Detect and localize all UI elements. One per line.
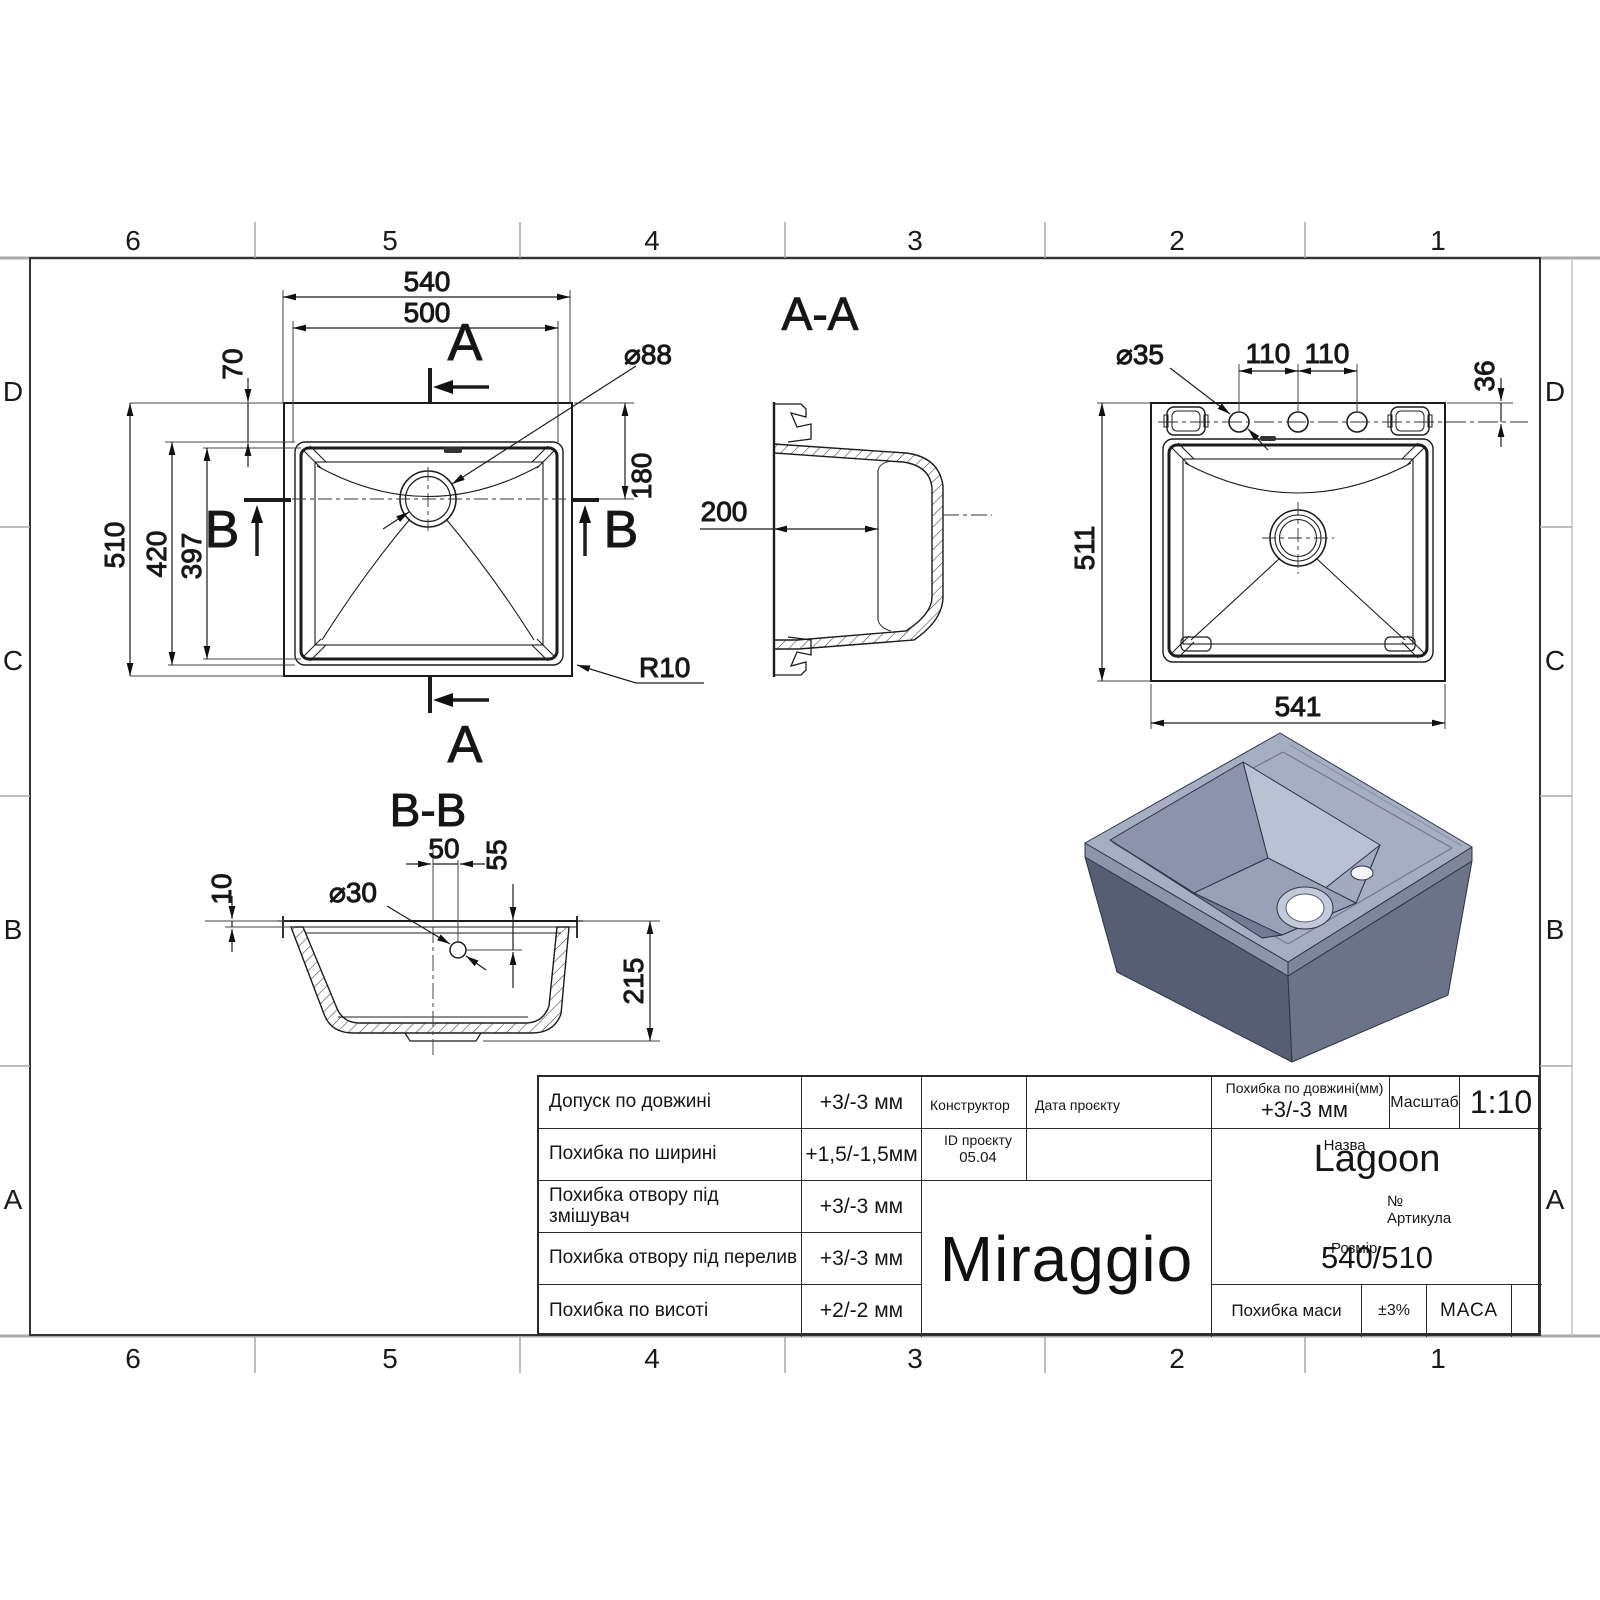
tolerance-label-5: Похибка по висоті xyxy=(539,1285,802,1337)
mounting-slot-left xyxy=(1164,407,1208,435)
aa-wall-section xyxy=(774,444,943,649)
title-block: Допуск по довжині +3/-3 мм Похибка по ши… xyxy=(537,1075,1540,1335)
dim-inner-width: 500 xyxy=(404,297,451,328)
article-label: № Артикула xyxy=(1387,1193,1451,1227)
dim-drain-offset-50: 50 xyxy=(428,833,459,864)
dim-outer-height: 510 xyxy=(99,522,130,569)
bb-drain-boss xyxy=(405,1033,481,1041)
zone-col-4-bottom: 4 xyxy=(644,1343,660,1374)
plan-outer-outline xyxy=(284,403,572,676)
zone-col-1-top: 1 xyxy=(1430,225,1446,256)
length-tolerance-label: Похибка по довжині(мм) xyxy=(1226,1080,1384,1096)
project-id-label: ID проєкту xyxy=(944,1132,1012,1148)
dim-inner-height: 420 xyxy=(141,531,172,578)
mass-label: МАСА xyxy=(1427,1285,1512,1337)
dim-outer-width: 540 xyxy=(404,266,451,297)
mounting-slot-right xyxy=(1388,407,1432,435)
tolerance-label-3: Похибка отвору під змішувач xyxy=(539,1181,802,1233)
mass-empty-cell xyxy=(1512,1285,1542,1337)
dim-drain-depth-55: 55 xyxy=(481,839,512,870)
name-label: Назва xyxy=(1324,1137,1366,1154)
zone-row-c-left: C xyxy=(3,645,23,676)
section-label-a-bottom: A xyxy=(448,716,483,774)
mass-tolerance-label: Похибка маси xyxy=(1212,1285,1362,1337)
zone-col-5-bottom: 5 xyxy=(382,1343,398,1374)
zone-col-3-top: 3 xyxy=(907,225,923,256)
plan-view: 540 500 510 420 397 70 180 ⌀88 R10 A A B… xyxy=(99,266,704,774)
zone-col-6-bottom: 6 xyxy=(125,1343,141,1374)
section-aa-view: A-A 200 xyxy=(700,288,992,677)
dim-hole-spacing-left: 110 xyxy=(1246,338,1291,369)
project-date-label: Дата проєкту xyxy=(1027,1077,1212,1129)
tolerance-value-4: +3/-3 мм xyxy=(802,1233,922,1285)
project-id-cell: ID проєкту 05.04 xyxy=(922,1129,1027,1181)
bb-drain-hole xyxy=(450,942,466,958)
mass-tolerance-value: ±3% xyxy=(1362,1285,1427,1337)
scale-value: 1:10 xyxy=(1460,1077,1542,1129)
project-date-value xyxy=(1027,1129,1212,1181)
zone-row-d-left: D xyxy=(3,376,23,407)
tolerance-value-3: +3/-3 мм xyxy=(802,1181,922,1233)
section-bb-title: B-B xyxy=(390,784,467,836)
tolerance-label-4: Похибка отвору під перелив xyxy=(539,1233,802,1285)
brand-logo: Miraggio xyxy=(922,1181,1212,1337)
bottom-view: 110 110 511 541 36 ⌀35 xyxy=(1069,338,1528,729)
section-bb-view: B-B 50 55 xyxy=(205,784,660,1055)
tolerance-value-1: +3/-3 мм xyxy=(802,1077,922,1129)
plan-overflow-slot xyxy=(444,447,462,453)
section-label-b-right: B xyxy=(604,501,639,559)
tolerance-label-2: Похибка по ширині xyxy=(539,1129,802,1181)
zone-col-5-top: 5 xyxy=(382,225,398,256)
zone-row-b-right: B xyxy=(1546,914,1565,945)
zone-row-a-left: A xyxy=(4,1184,23,1215)
zone-col-3-bottom: 3 xyxy=(907,1343,923,1374)
aa-clip-top xyxy=(774,404,811,442)
section-aa-title: A-A xyxy=(782,288,859,340)
dim-total-height-215: 215 xyxy=(618,958,649,1005)
dim-hole-from-edge-36: 36 xyxy=(1469,360,1500,391)
zone-col-6-top: 6 xyxy=(125,225,141,256)
designer-label: Конструктор xyxy=(922,1077,1027,1129)
dim-corner-radius: R10 xyxy=(639,652,690,683)
sink-3d-view xyxy=(1085,733,1472,1062)
zone-col-4-top: 4 xyxy=(644,225,660,256)
plan-section-line-b xyxy=(244,500,599,556)
zone-col-1-bottom: 1 xyxy=(1430,1343,1446,1374)
dim-top-offset: 70 xyxy=(217,348,248,379)
plan-rim-inner xyxy=(301,448,557,659)
zone-row-a-right: A xyxy=(1546,1184,1565,1215)
zone-row-d-right: D xyxy=(1545,376,1565,407)
scale-label: Масштаб xyxy=(1390,1077,1460,1129)
length-tolerance-value: +3/-3 мм xyxy=(1220,1097,1389,1123)
dim-rim-thickness-10: 10 xyxy=(206,873,237,904)
drawing-sheet: 6 5 4 3 2 1 6 5 4 3 2 1 D C B A D C B A xyxy=(0,0,1600,1600)
product-info-cell: Назва Lagoon № Артикула Розмір 540/510 xyxy=(1212,1129,1542,1285)
project-id-value: 05.04 xyxy=(930,1149,1026,1166)
dim-bottom-height-511: 511 xyxy=(1069,526,1100,571)
zone-col-2-bottom: 2 xyxy=(1169,1343,1185,1374)
bottom-overflow-slot xyxy=(1260,436,1276,441)
dim-hole-diameter-35: ⌀35 xyxy=(1116,339,1164,370)
plan-section-line-a xyxy=(430,368,489,713)
section-label-b-left: B xyxy=(205,501,240,559)
dim-drain-from-top: 180 xyxy=(626,453,657,500)
dim-hole-diameter-30: ⌀30 xyxy=(329,877,377,908)
tolerance-label-1: Допуск по довжині xyxy=(539,1077,802,1129)
length-tolerance-cell: Похибка по довжині(мм) +3/-3 мм xyxy=(1212,1077,1390,1129)
tolerance-value-2: +1,5/-1,5мм xyxy=(802,1129,922,1181)
dim-bowl-height: 397 xyxy=(176,533,207,580)
tolerance-value-5: +2/-2 мм xyxy=(802,1285,922,1337)
size-label: Розмір xyxy=(1331,1240,1377,1257)
sink-drain-hole xyxy=(1286,894,1324,922)
section-label-a-top: A xyxy=(448,314,483,372)
zone-col-2-top: 2 xyxy=(1169,225,1185,256)
zone-row-b-left: B xyxy=(4,914,23,945)
dim-depth-200: 200 xyxy=(701,496,748,527)
dim-hole-spacing-right: 110 xyxy=(1305,338,1350,369)
plan-bowl-top xyxy=(315,462,543,645)
sink-faucet-hole xyxy=(1351,866,1373,880)
dim-drain-diameter: ⌀88 xyxy=(624,339,672,370)
zone-row-c-right: C xyxy=(1545,645,1565,676)
dim-bottom-width-541: 541 xyxy=(1275,691,1322,722)
